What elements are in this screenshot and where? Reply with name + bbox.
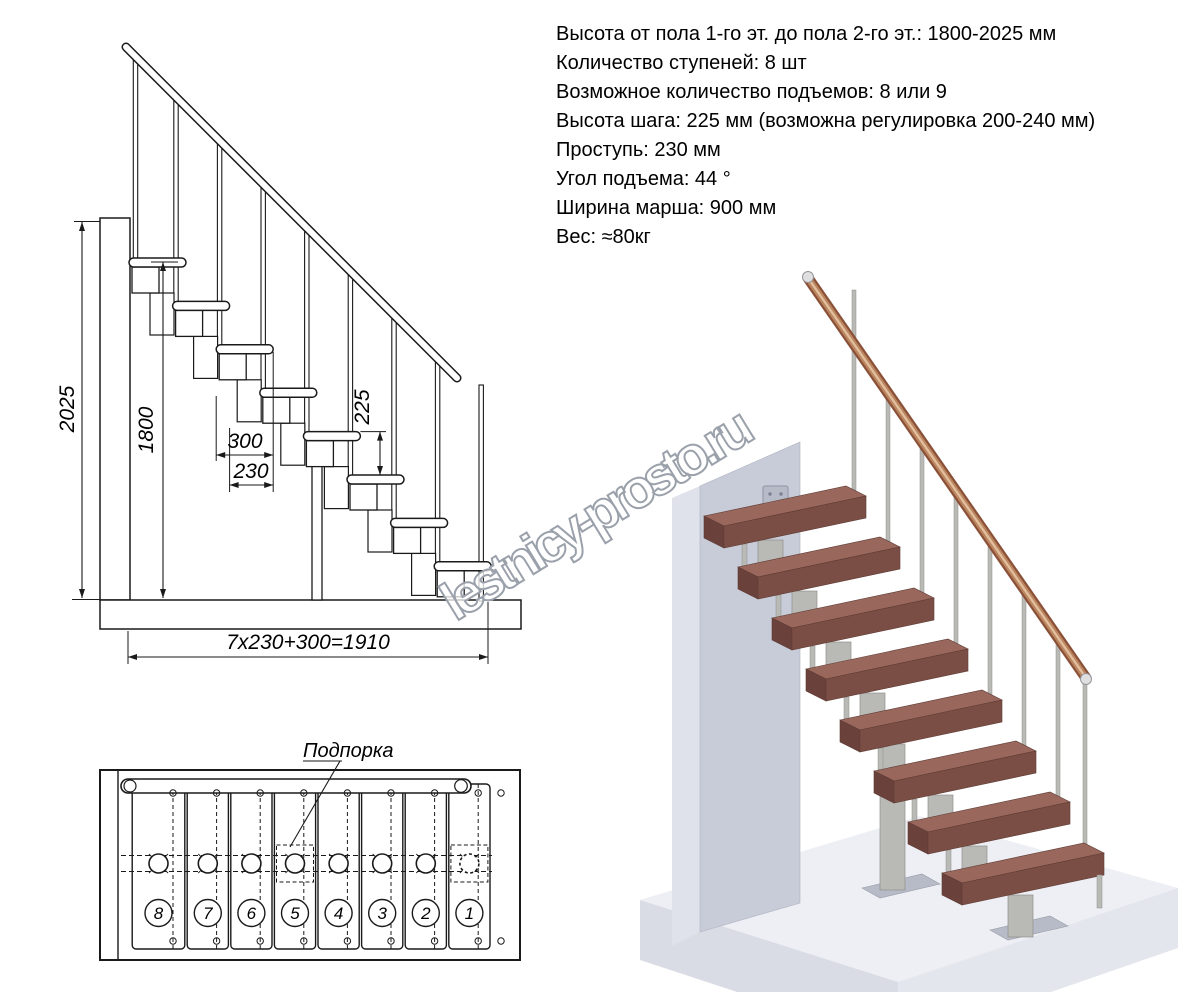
dimension-arrow — [128, 654, 137, 660]
module-bracket — [412, 553, 436, 595]
plan-post-circle — [198, 854, 217, 873]
module-box — [306, 441, 333, 467]
render-baluster — [852, 290, 856, 496]
dim-label-total-height: 2025 — [56, 385, 79, 433]
bracket-hole — [779, 492, 782, 495]
render-baluster — [886, 393, 890, 547]
tread — [260, 388, 317, 397]
spec-line: Вес: ≈80кг — [556, 223, 1095, 252]
module-bracket — [237, 380, 261, 422]
dim-label-tread-depth: 300 — [227, 430, 262, 453]
render-baluster — [1083, 677, 1087, 853]
tread — [216, 345, 273, 354]
baluster — [133, 57, 137, 262]
spec-line: Высота шага: 225 мм (возможна регулировк… — [556, 107, 1095, 136]
plan-step-number: 6 — [247, 904, 257, 923]
dimension-arrow — [377, 466, 383, 475]
plan-step-number: 5 — [290, 904, 300, 923]
stair-3d-render — [640, 272, 1178, 992]
dimension-arrow — [264, 452, 273, 458]
dim-label-clear-height: 1800 — [135, 406, 158, 453]
dimension-arrow — [479, 654, 488, 660]
spec-line: Возможное количество подъемов: 8 или 9 — [556, 78, 1095, 107]
plan-post-circle — [460, 854, 479, 873]
baluster — [261, 184, 265, 389]
baluster — [392, 315, 396, 519]
handrail-cap — [803, 272, 814, 283]
module-bracket — [324, 467, 348, 509]
plan-post-circle — [416, 854, 435, 873]
module-box — [176, 310, 203, 336]
tread — [173, 301, 230, 310]
plan-step-number: 3 — [377, 904, 387, 923]
module-bracket — [194, 336, 218, 378]
tread — [303, 432, 360, 441]
baluster — [217, 141, 221, 346]
baluster — [305, 228, 309, 433]
baluster — [435, 359, 439, 563]
render-baluster — [1056, 638, 1060, 802]
module-bracket — [281, 423, 305, 465]
handrail-cap — [1081, 674, 1092, 685]
plan-post-circle — [329, 854, 348, 873]
dim-label-step-rise: 225 — [351, 389, 374, 425]
plan-step-number: 1 — [465, 904, 474, 923]
module-box — [263, 397, 290, 423]
support-post — [312, 466, 322, 600]
floor-column — [1008, 895, 1033, 937]
wall-side-face — [672, 486, 700, 946]
plan-step-number: 2 — [420, 904, 431, 923]
dimension-arrow — [377, 432, 383, 441]
module-box — [350, 484, 377, 510]
dimension-arrow — [216, 452, 225, 458]
dimension-arrow — [79, 589, 85, 598]
dimension-arrow — [79, 222, 85, 231]
plan-step-number: 8 — [154, 904, 164, 923]
front-leg — [1097, 875, 1102, 908]
wall-column — [100, 218, 130, 600]
render-baluster — [954, 491, 958, 649]
bracket-hole — [768, 492, 771, 495]
plan-handrail — [121, 779, 471, 793]
dim-label-total-run: 7x230+300=1910 — [226, 631, 390, 654]
spec-line: Проступь: 230 мм — [556, 136, 1095, 165]
baluster — [174, 97, 178, 302]
render-baluster — [920, 442, 924, 598]
tread — [391, 518, 448, 527]
dim-label-step-run: 230 — [232, 460, 268, 483]
plan-post-circle — [242, 854, 261, 873]
module-box — [219, 354, 246, 380]
module-box — [394, 527, 421, 553]
plan-post-circle — [286, 854, 305, 873]
plan-step-number: 4 — [334, 904, 343, 923]
spec-line: Количество ступеней: 8 шт — [556, 49, 1095, 78]
module-box — [132, 267, 159, 293]
spec-line: Высота от пола 1-го эт. до пола 2-го эт.… — [556, 20, 1095, 49]
spec-line: Угол подъема: 44 ° — [556, 165, 1095, 194]
module-bracket — [150, 293, 174, 335]
spec-line: Ширина марша: 900 мм — [556, 194, 1095, 223]
plan-step-number: 7 — [203, 904, 213, 923]
spec-text-block: Высота от пола 1-го эт. до пола 2-го эт.… — [556, 20, 1095, 252]
plan-post-circle — [373, 854, 392, 873]
module-bracket — [368, 510, 392, 552]
support-callout-label: Подпорка — [303, 740, 394, 762]
baluster — [348, 271, 352, 476]
plan-post-circle — [149, 854, 168, 873]
render-baluster — [1022, 589, 1026, 751]
plan-view-drawing — [100, 761, 520, 960]
dimension-arrow — [160, 589, 166, 598]
render-baluster — [988, 540, 992, 700]
tread — [347, 475, 404, 484]
